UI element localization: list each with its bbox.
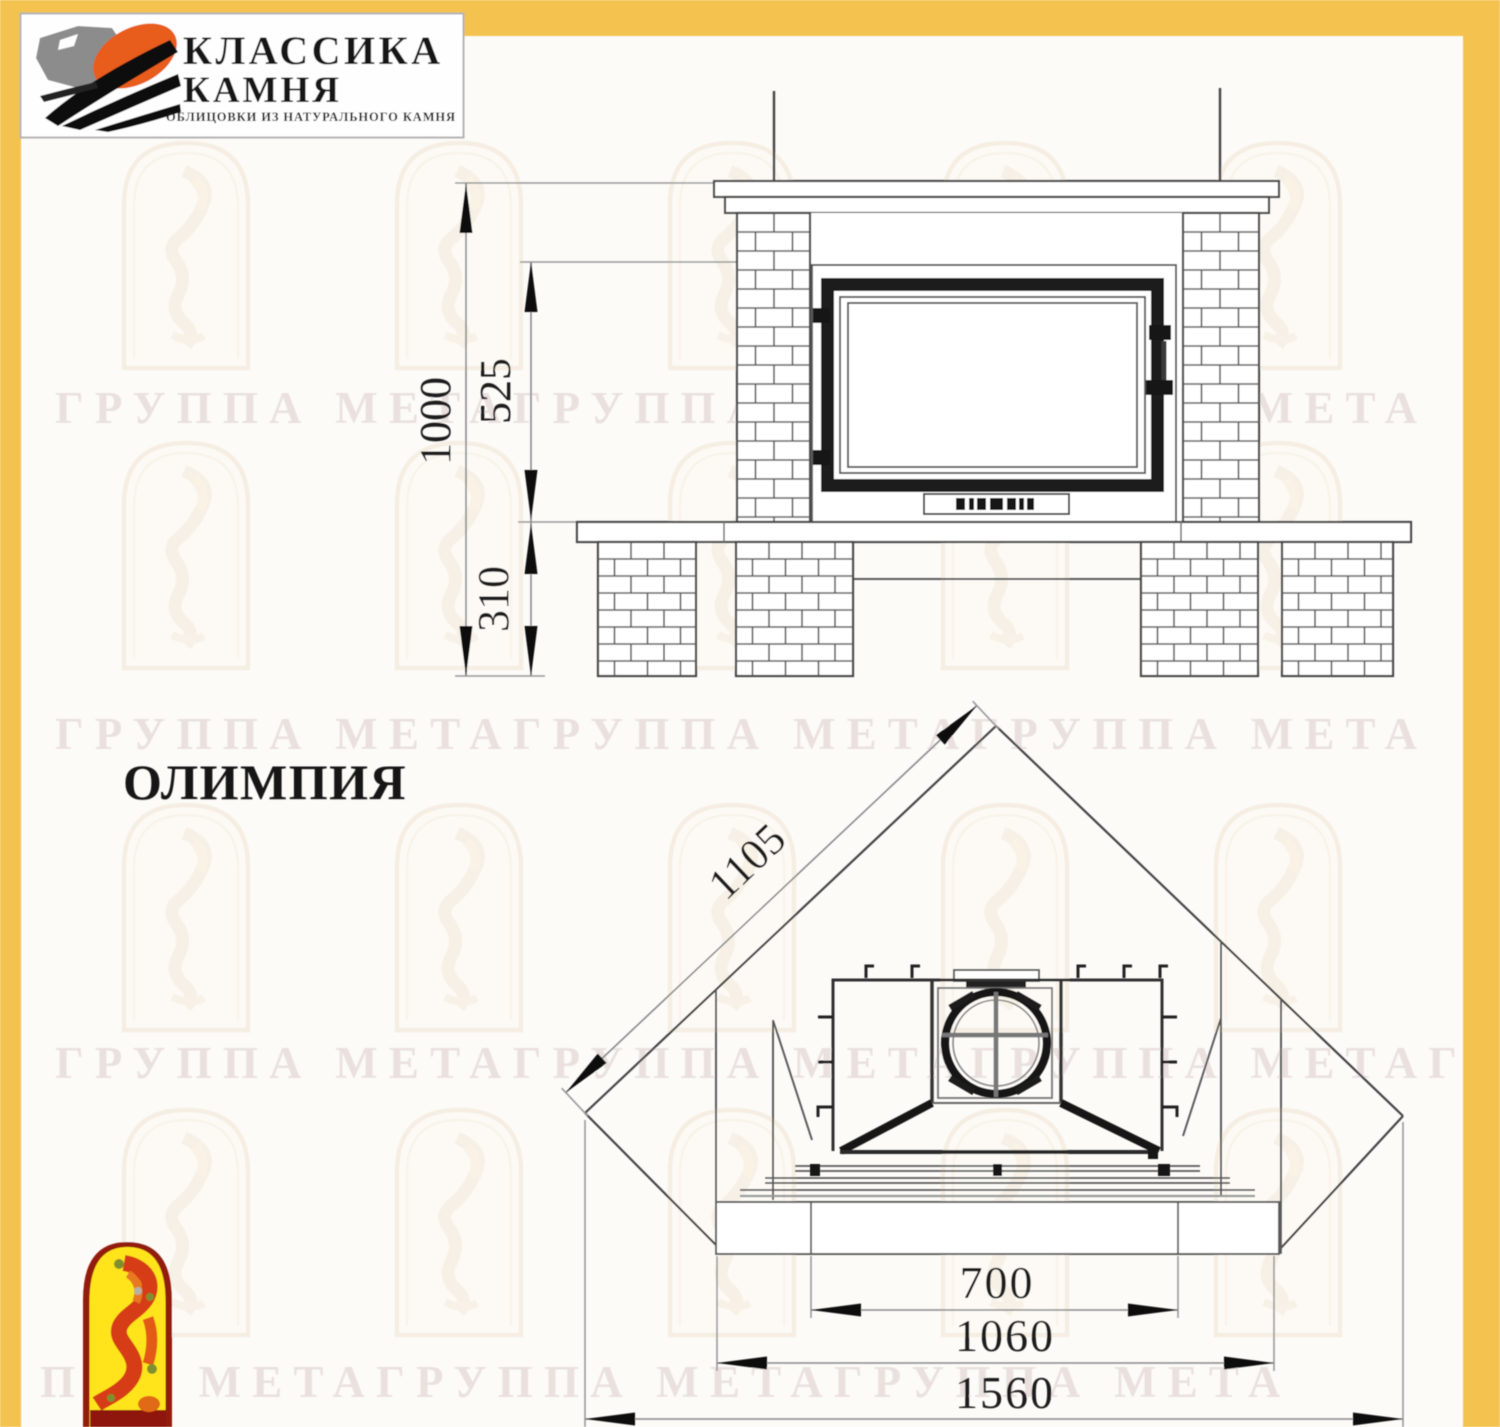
svg-text:1560: 1560 xyxy=(955,1367,1055,1418)
svg-text:ГРУППА МЕТАГРУППА МЕТАГРУППА М: ГРУППА МЕТАГРУППА МЕТАГРУППА МЕТАГРУППА xyxy=(55,1038,1500,1088)
svg-text:ППА МЕТАГРУППА МЕТАГРУППА МЕТА: ППА МЕТАГРУППА МЕТАГРУППА МЕТА xyxy=(40,1357,1292,1407)
svg-text:КЛАССИКА: КЛАССИКА xyxy=(183,28,443,73)
svg-text:КАМНЯ: КАМНЯ xyxy=(183,70,342,111)
svg-text:ОБЛИЦОВКИ ИЗ НАТУРАЛЬНОГО КАМН: ОБЛИЦОВКИ ИЗ НАТУРАЛЬНОГО КАМНЯ xyxy=(166,110,456,124)
svg-text:310: 310 xyxy=(469,566,518,632)
svg-text:ОЛИМПИЯ: ОЛИМПИЯ xyxy=(123,754,407,810)
svg-text:1000: 1000 xyxy=(411,377,460,465)
svg-text:ГРУППА МЕТАГРУППА МЕТАГРУППА М: ГРУППА МЕТАГРУППА МЕТАГРУППА МЕТА xyxy=(55,709,1428,759)
svg-text:525: 525 xyxy=(471,358,520,424)
svg-text:700: 700 xyxy=(960,1257,1035,1308)
svg-text:1060: 1060 xyxy=(955,1310,1055,1361)
